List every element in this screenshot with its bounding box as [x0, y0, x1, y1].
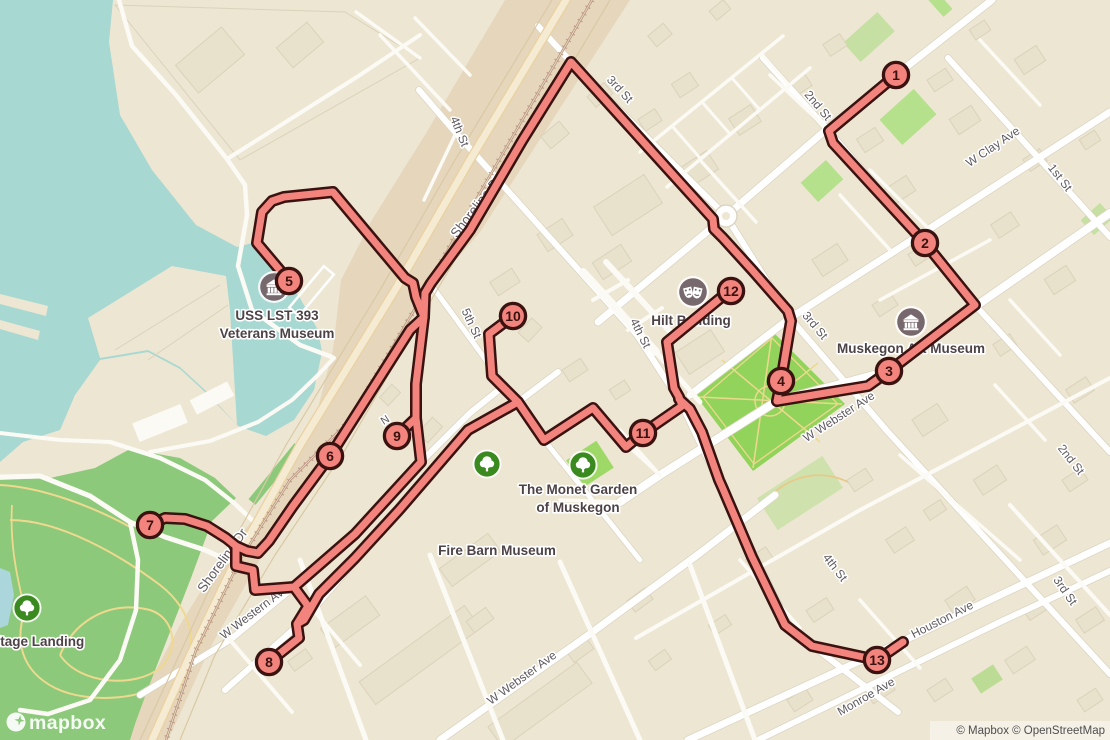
svg-text:1: 1 [892, 67, 900, 83]
svg-text:6: 6 [326, 448, 334, 464]
svg-text:The Monet Garden: The Monet Garden [519, 482, 638, 497]
svg-text:11: 11 [636, 425, 651, 441]
svg-text:mapbox: mapbox [29, 712, 106, 734]
svg-text:USS LST 393: USS LST 393 [235, 308, 319, 323]
svg-text:5: 5 [285, 273, 293, 289]
svg-text:12: 12 [723, 283, 739, 299]
svg-text:Veterans Museum: Veterans Museum [220, 326, 335, 341]
svg-text:2: 2 [921, 235, 929, 251]
svg-text:8: 8 [265, 654, 273, 670]
svg-text:of Muskegon: of Muskegon [536, 500, 619, 515]
svg-text:4: 4 [777, 373, 785, 389]
svg-text:Fire Barn Museum: Fire Barn Museum [438, 543, 556, 558]
svg-text:3: 3 [885, 363, 893, 379]
svg-text:© Mapbox © OpenStreetMap: © Mapbox © OpenStreetMap [956, 725, 1105, 737]
svg-text:7: 7 [146, 517, 154, 533]
svg-text:13: 13 [869, 652, 885, 668]
svg-text:10: 10 [505, 308, 521, 324]
svg-text:9: 9 [393, 428, 401, 444]
svg-text:Heritage Landing: Heritage Landing [0, 634, 84, 649]
